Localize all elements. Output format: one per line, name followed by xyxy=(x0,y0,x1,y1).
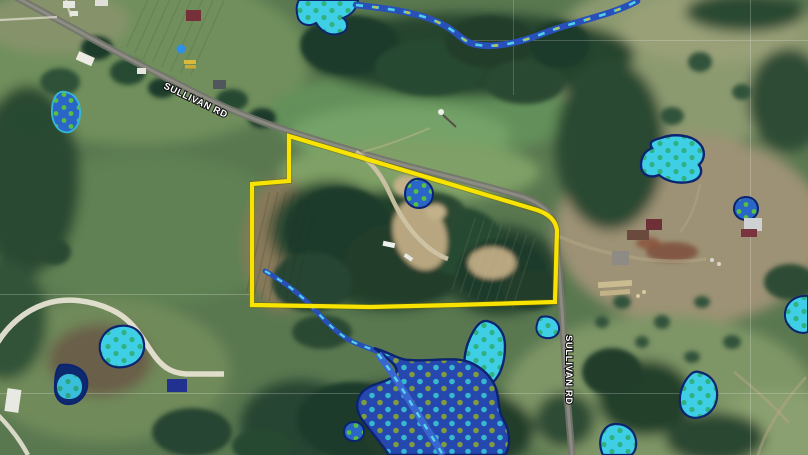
pond-top-left[interactable] xyxy=(52,92,80,133)
pond-right-large[interactable] xyxy=(641,135,704,182)
pond-bottom-right-lower[interactable] xyxy=(600,424,636,455)
road-label-sullivan-vertical: SULLIVAN RD xyxy=(563,335,574,405)
pond-bottom-left-dark-inner xyxy=(57,374,82,399)
windmill xyxy=(438,109,444,115)
house-maroon-far-right xyxy=(741,229,757,237)
building-blue-roof xyxy=(167,379,187,392)
school-bus xyxy=(184,60,196,64)
pond-teardrop-by-road[interactable] xyxy=(536,317,559,339)
barn-red-roof xyxy=(627,230,649,240)
school-bus xyxy=(185,65,196,69)
barn-gray xyxy=(612,251,629,265)
pond-small-round-bottom[interactable] xyxy=(344,422,364,441)
pond-bottom-left-cyan[interactable] xyxy=(100,326,144,368)
map-canvas[interactable]: SULLIVAN RD SULLIVAN RD xyxy=(0,0,808,455)
house-dark-roof xyxy=(213,80,226,89)
swimming-pool xyxy=(177,45,186,54)
house-maroon-right xyxy=(646,219,662,230)
house-maroon-top xyxy=(186,10,201,21)
pond-right-round[interactable] xyxy=(734,197,758,220)
pond-inside-parcel[interactable] xyxy=(405,179,433,208)
